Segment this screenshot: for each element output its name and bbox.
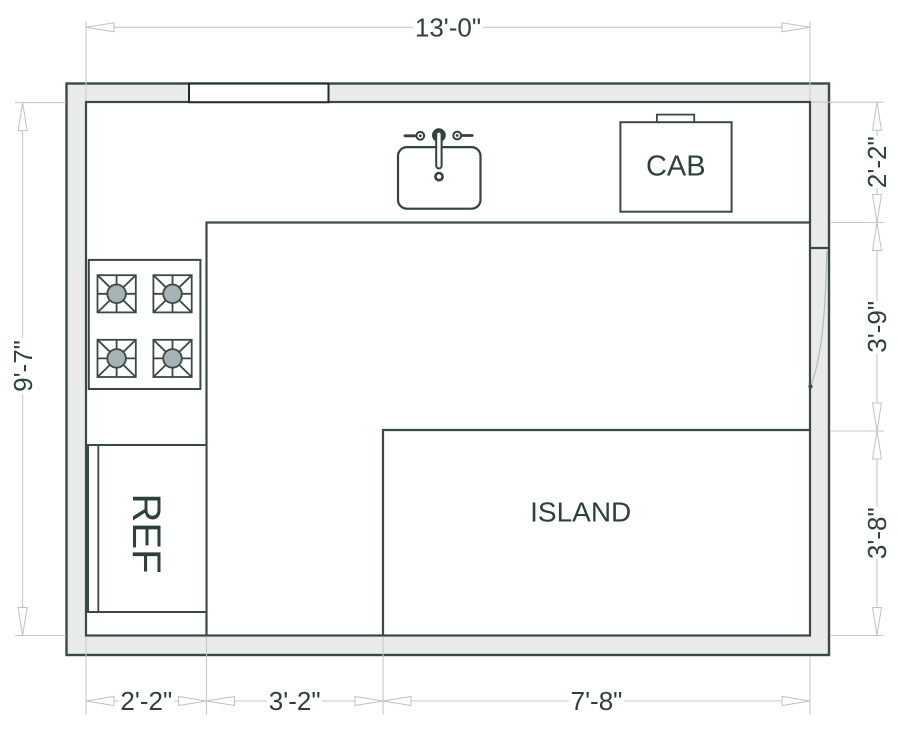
- svg-text:3'-8": 3'-8": [862, 507, 892, 559]
- svg-text:7'-8": 7'-8": [571, 686, 623, 716]
- svg-text:13'-0": 13'-0": [415, 13, 481, 43]
- svg-text:3'-9": 3'-9": [862, 301, 892, 353]
- svg-text:9'-7": 9'-7": [8, 340, 38, 392]
- svg-text:REF: REF: [124, 494, 168, 574]
- svg-text:2'-2": 2'-2": [120, 686, 172, 716]
- svg-text:ISLAND: ISLAND: [530, 497, 631, 528]
- svg-text:2'-2": 2'-2": [862, 136, 892, 188]
- svg-text:3'-2": 3'-2": [269, 686, 321, 716]
- svg-text:CAB: CAB: [646, 150, 706, 182]
